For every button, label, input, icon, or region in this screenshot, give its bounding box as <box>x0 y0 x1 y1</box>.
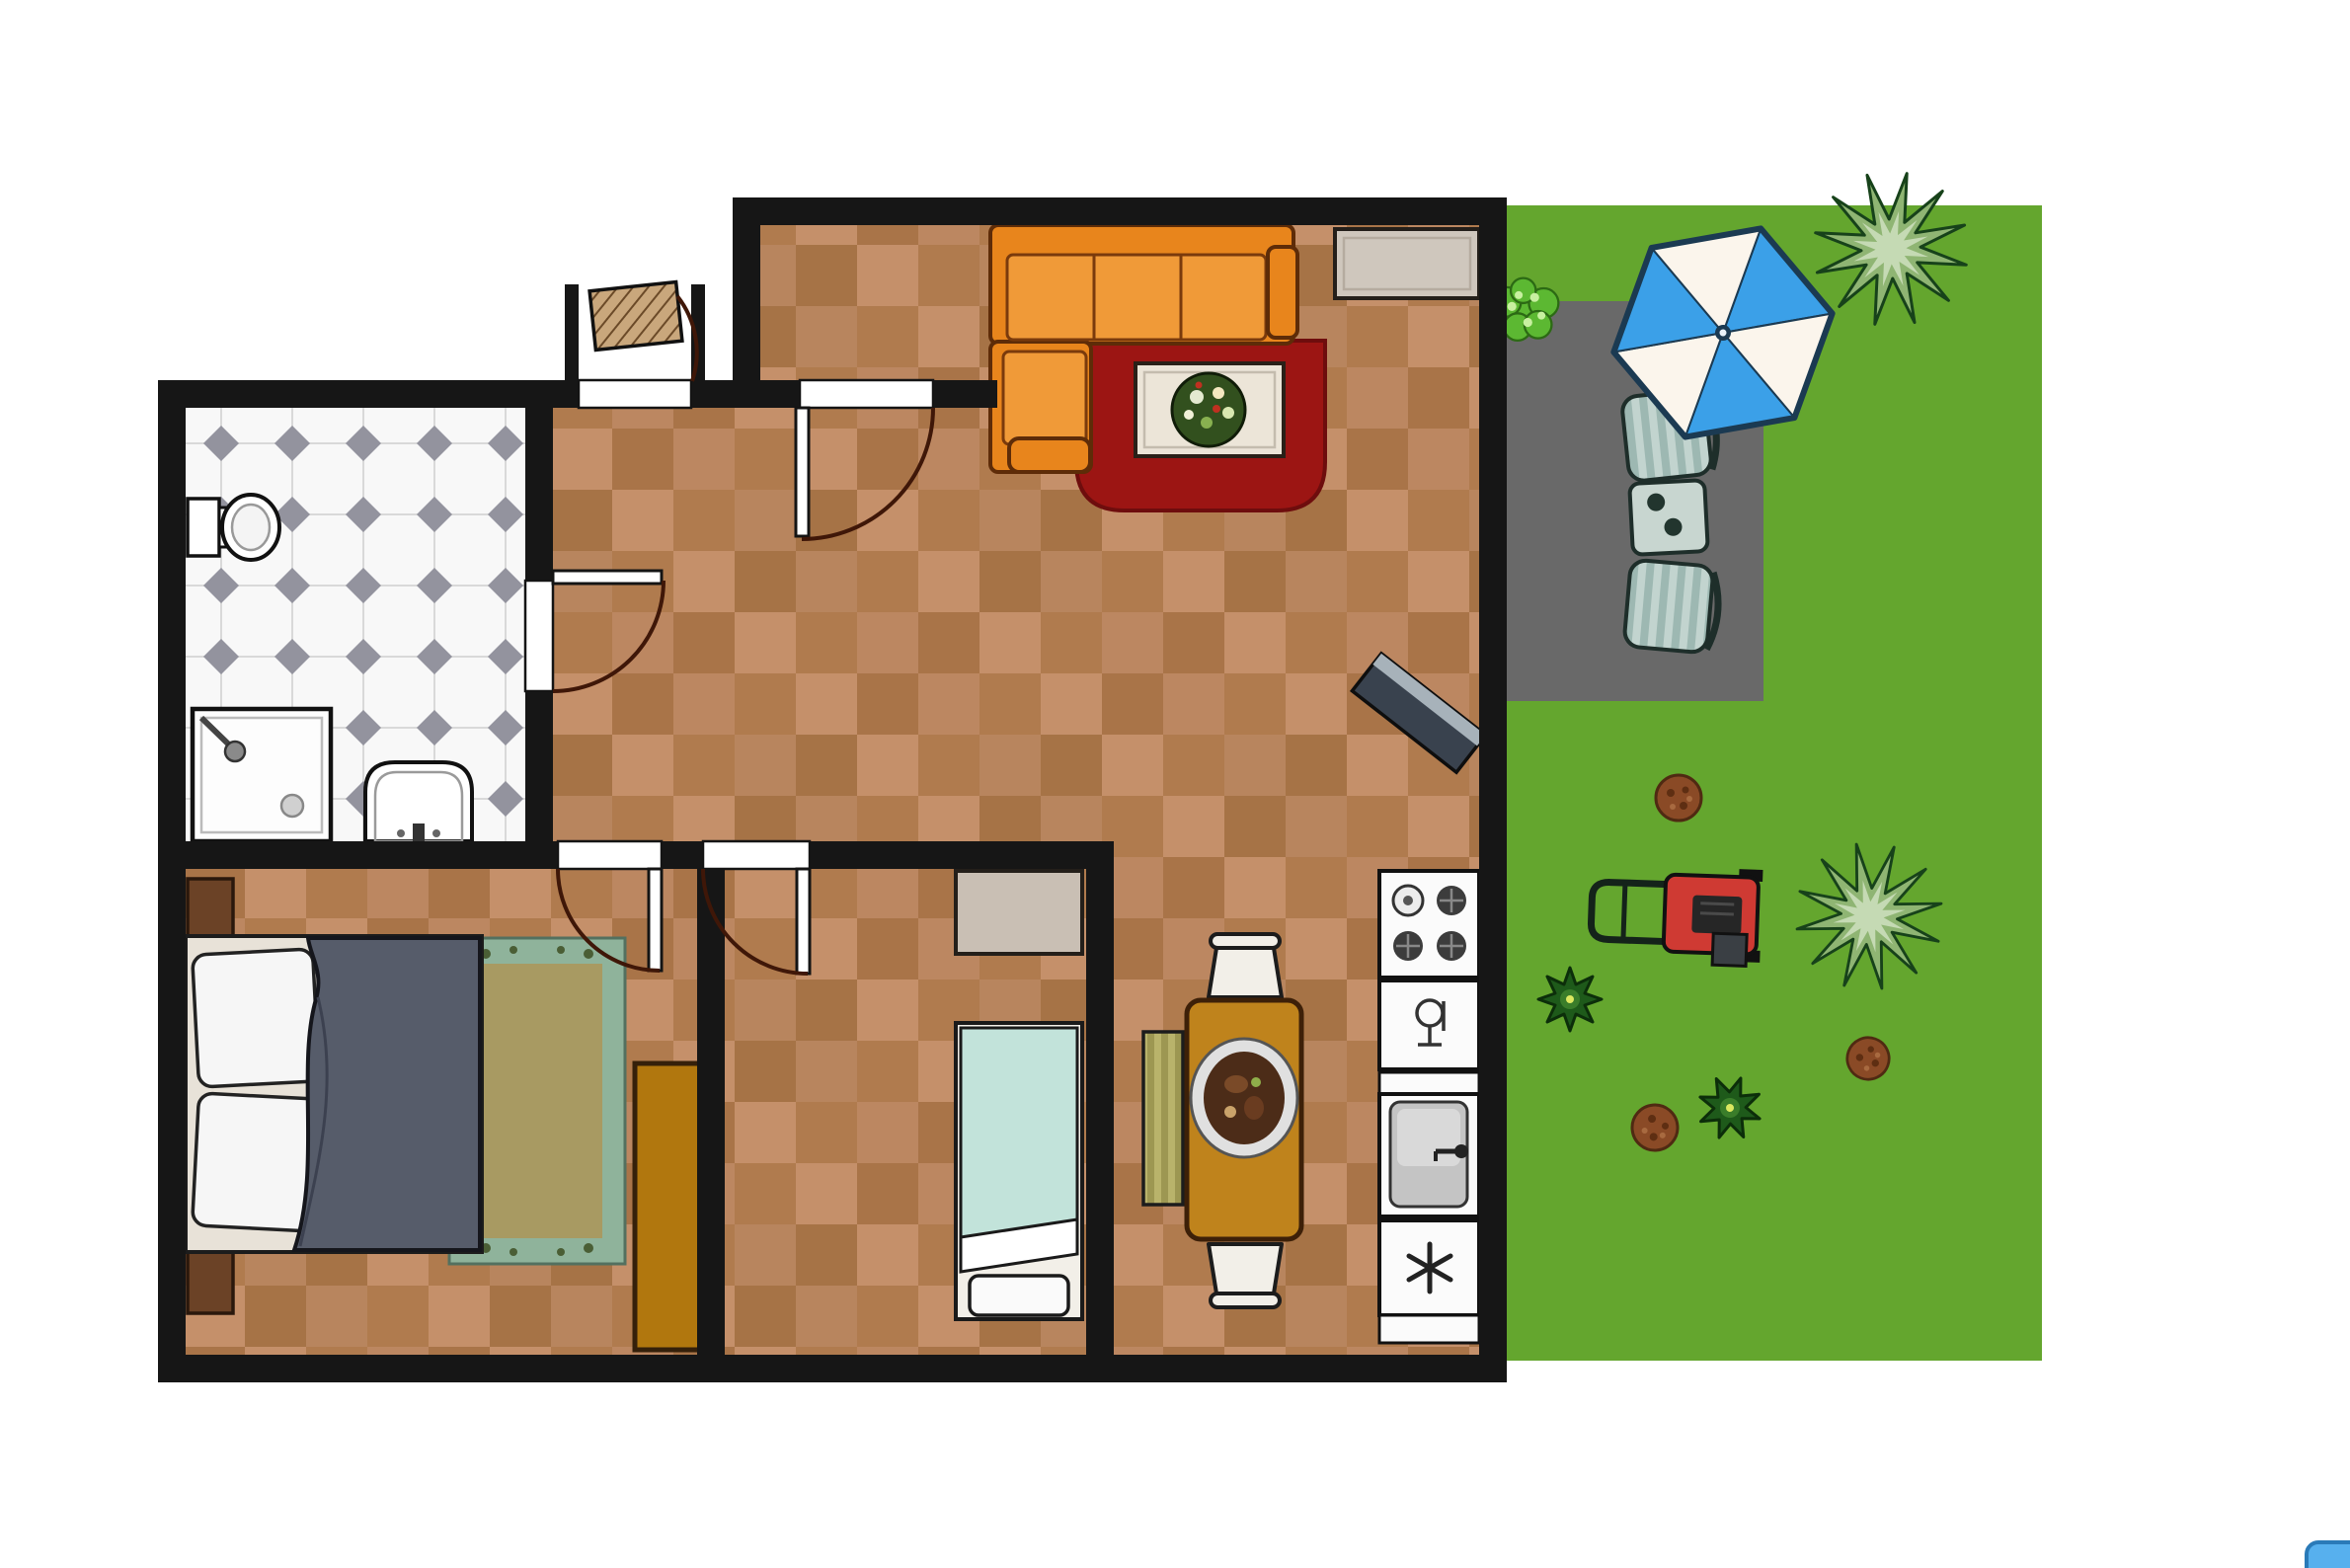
wall-small-bedroom-right <box>1086 869 1114 1355</box>
wall-bedrooms-top-a <box>158 841 558 869</box>
wall-vestibule-left <box>565 284 579 408</box>
wall-bedrooms-top-c <box>810 841 1114 869</box>
floor-plan-canvas <box>0 0 2350 1568</box>
dark-bush-1 <box>1538 968 1602 1031</box>
shower-head <box>225 742 245 761</box>
entry-door-leaf <box>589 282 682 351</box>
wall-bedroom-divider <box>697 869 725 1355</box>
wall-bottom <box>158 1355 1507 1382</box>
wall-living-top <box>733 197 1507 225</box>
lounge-chair-2 <box>1623 560 1721 655</box>
wall-bathroom-right-a <box>525 408 553 581</box>
counter-base <box>1379 1315 1479 1343</box>
shower-drain <box>281 795 303 817</box>
pillow-bottom <box>193 1093 320 1231</box>
sofa-armrest-bottom <box>1009 438 1090 472</box>
threshold-bedroom1-door <box>558 841 662 869</box>
double-bed <box>186 936 482 1252</box>
wardrobe <box>635 1063 708 1350</box>
wall-bedrooms-top-b <box>662 841 703 869</box>
sideboard <box>1335 229 1479 298</box>
wall-left <box>158 380 186 1382</box>
kitchen-sink <box>1379 1094 1479 1216</box>
basin-faucet <box>413 823 425 841</box>
sofa-armrest-right <box>1268 247 1297 338</box>
wall-bathroom-top <box>158 380 565 408</box>
wall-hall-top-b <box>933 380 997 408</box>
counter-segment <box>1379 1072 1479 1094</box>
single-bed <box>956 1023 1082 1319</box>
kitchen-appliances <box>1379 871 1479 1343</box>
chair-bottom <box>1209 1244 1282 1307</box>
dirt-patch-1 <box>1656 775 1701 821</box>
washbasin <box>365 762 472 841</box>
bedroom2-door-leaf <box>797 869 810 974</box>
bedroom1-door-leaf <box>649 869 662 971</box>
threshold-vestibule <box>579 380 691 408</box>
wall-hall-top-a <box>705 380 800 408</box>
small-bedroom-furniture <box>956 871 1082 1319</box>
platter <box>1191 1039 1297 1157</box>
dresser <box>956 871 1082 954</box>
toilet <box>188 495 279 560</box>
mower-bag <box>1712 933 1747 966</box>
living-door-leaf <box>796 408 809 536</box>
stove <box>1379 871 1479 978</box>
threshold-bedroom2-door <box>703 841 810 869</box>
bed-blanket <box>294 938 480 1250</box>
freezer <box>1379 1220 1479 1315</box>
threshold-bathroom-door <box>525 581 553 691</box>
table-plant <box>1172 373 1245 446</box>
shower <box>193 709 331 841</box>
bathroom-door-leaf <box>553 571 662 584</box>
floor-plan-page <box>0 0 2350 1568</box>
dishwasher <box>1379 980 1479 1069</box>
garden-table <box>1629 480 1708 555</box>
bed-blanket-aqua <box>961 1028 1077 1237</box>
striped-bench <box>1143 1032 1183 1205</box>
blue-corner-artifact <box>2307 1542 2350 1568</box>
wall-bathroom-right-b <box>525 691 553 841</box>
pillow-top <box>193 949 320 1087</box>
wall-right <box>1479 197 1507 1382</box>
sofa-seat-cushions <box>1007 255 1266 340</box>
threshold-living-door <box>800 380 933 408</box>
coffee-table <box>1136 363 1284 456</box>
pillow <box>970 1276 1068 1315</box>
chair-top <box>1209 934 1282 997</box>
garden <box>1492 157 2043 1361</box>
wall-living-left <box>733 197 760 408</box>
